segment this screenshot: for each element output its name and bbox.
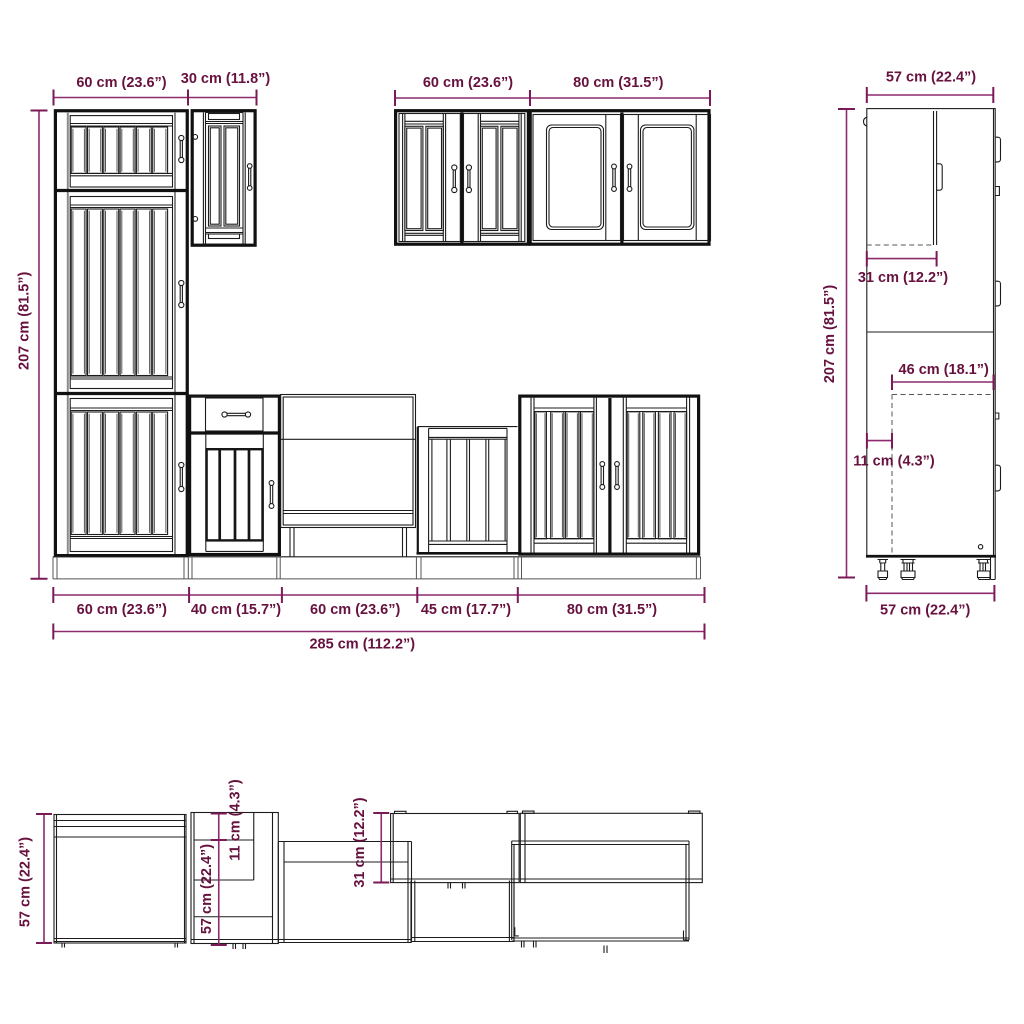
svg-text:31 cm (12.2”): 31 cm (12.2”)	[858, 270, 948, 286]
svg-text:11 cm (4.3”): 11 cm (4.3”)	[853, 454, 935, 470]
svg-text:30 cm (11.8”): 30 cm (11.8”)	[181, 71, 271, 87]
svg-text:45 cm (17.7”): 45 cm (17.7”)	[421, 602, 511, 618]
svg-text:80 cm (31.5”): 80 cm (31.5”)	[567, 602, 657, 618]
svg-text:80 cm (31.5”): 80 cm (31.5”)	[573, 75, 663, 91]
svg-text:60 cm (23.6”): 60 cm (23.6”)	[76, 75, 166, 91]
svg-text:285 cm (112.2”): 285 cm (112.2”)	[309, 637, 415, 653]
svg-text:207 cm (81.5”): 207 cm (81.5”)	[822, 285, 838, 384]
svg-text:40 cm (15.7”): 40 cm (15.7”)	[191, 602, 281, 618]
svg-text:57 cm (22.4”): 57 cm (22.4”)	[886, 70, 976, 86]
svg-text:60 cm (23.6”): 60 cm (23.6”)	[423, 75, 513, 91]
svg-text:207 cm (81.5”): 207 cm (81.5”)	[17, 271, 33, 370]
svg-text:57 cm (22.4”): 57 cm (22.4”)	[880, 603, 970, 619]
svg-text:31 cm (12.2”): 31 cm (12.2”)	[352, 797, 368, 887]
svg-text:60 cm (23.6”): 60 cm (23.6”)	[77, 602, 167, 618]
svg-text:46 cm (18.1”): 46 cm (18.1”)	[899, 362, 989, 378]
svg-text:57 cm (22.4”): 57 cm (22.4”)	[199, 844, 215, 934]
svg-text:60 cm (23.6”): 60 cm (23.6”)	[310, 602, 400, 618]
svg-text:11 cm (4.3”): 11 cm (4.3”)	[228, 779, 244, 861]
svg-text:57 cm (22.4”): 57 cm (22.4”)	[18, 837, 34, 927]
